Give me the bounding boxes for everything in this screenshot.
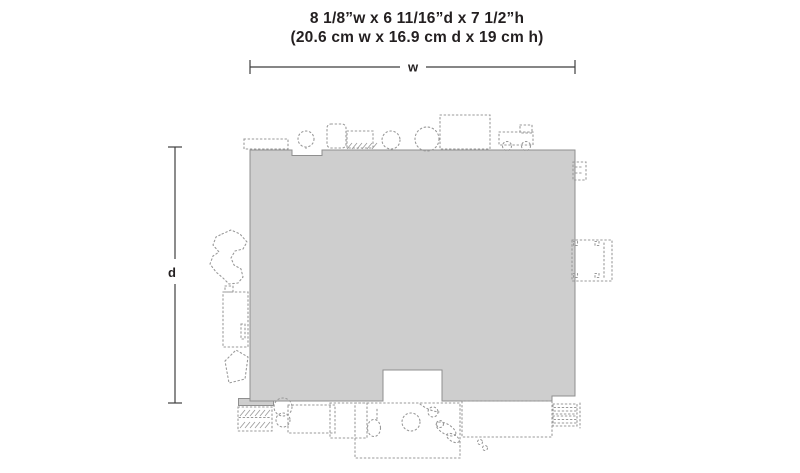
detail-barrel bbox=[382, 131, 400, 149]
width-label: w bbox=[407, 60, 419, 75]
detail-signpost bbox=[368, 408, 381, 437]
detail-loading-dock bbox=[462, 401, 552, 437]
detail-side-door bbox=[223, 286, 248, 347]
footprint-base bbox=[250, 150, 575, 401]
depth-label: d bbox=[168, 265, 176, 280]
top-edge-details bbox=[244, 115, 533, 151]
bottom-edge-details bbox=[238, 398, 552, 458]
detail-awning bbox=[210, 230, 247, 284]
detail-motorcycle bbox=[402, 404, 461, 445]
detail-stacked-crates bbox=[238, 407, 272, 431]
detail-tank bbox=[327, 124, 346, 148]
footprint-drawing: w d bbox=[0, 0, 800, 473]
product-footprint-diagram: 8 1/8”w x 6 11/16”d x 7 1/2”h (20.6 cm w… bbox=[0, 0, 800, 473]
detail-vehicle bbox=[499, 125, 533, 151]
left-edge-details bbox=[210, 230, 248, 383]
detail-lean-to bbox=[225, 350, 248, 383]
detail-figure bbox=[478, 440, 488, 451]
depth-dimension-line: d bbox=[168, 147, 182, 403]
detail-low-crate bbox=[244, 139, 288, 149]
width-dimension-line: w bbox=[250, 60, 575, 75]
detail-platform bbox=[288, 405, 335, 433]
detail-shed bbox=[440, 115, 490, 149]
detail-cistern bbox=[415, 127, 439, 151]
detail-barrel bbox=[298, 131, 314, 147]
detail-corner-stairs bbox=[553, 403, 580, 428]
detail-side-porch bbox=[572, 240, 612, 281]
